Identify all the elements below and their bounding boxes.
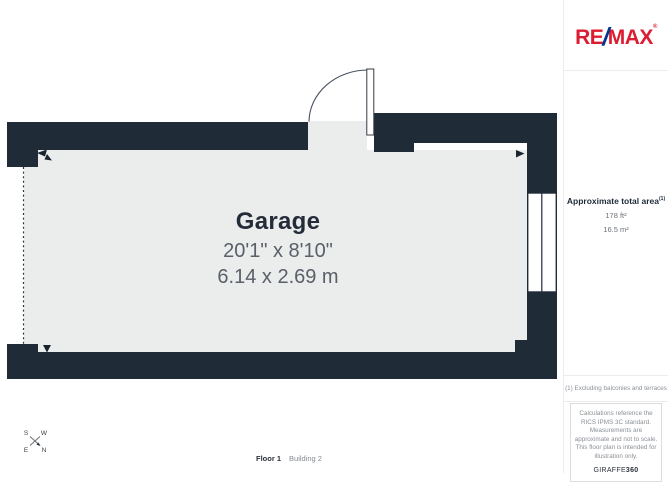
plan-footer: Floor 1Building 2 xyxy=(0,454,578,463)
door-leaf xyxy=(367,69,374,135)
doorway-floor xyxy=(308,121,367,152)
area-footnote: (1) Excluding balconies and terraces xyxy=(564,375,668,402)
info-sidebar: RE/MAX® Approximate total area(1) 178 ft… xyxy=(563,0,668,473)
wall-bottom xyxy=(7,352,557,379)
disclaimer-box: Calculations reference the RICS IPMS 3C … xyxy=(570,403,662,482)
logo-slash-icon: / xyxy=(602,23,608,51)
disclaimer-text: Calculations reference the RICS IPMS 3C … xyxy=(574,410,658,461)
compass-icon: S W E N xyxy=(19,426,51,456)
garage-floor xyxy=(24,150,527,352)
wall-notch-bottom-right xyxy=(515,340,527,352)
compass-e: E xyxy=(24,447,29,454)
floor-label: Floor 1 xyxy=(256,454,281,463)
registered-mark: ® xyxy=(653,24,657,30)
area-footnote-ref: (1) xyxy=(659,196,665,202)
wall-top-left xyxy=(7,122,308,150)
compass-w: W xyxy=(41,430,48,437)
logo-max: MAX xyxy=(608,26,653,49)
floor-plan xyxy=(0,0,563,473)
door-swing-arc xyxy=(309,70,368,122)
area-metric: 16.5 m² xyxy=(564,225,668,234)
wall-right-lower xyxy=(527,292,557,352)
area-imperial: 178 ft² xyxy=(564,211,668,220)
compass-n: N xyxy=(42,447,47,454)
area-title: Approximate total area(1) xyxy=(564,196,668,206)
wall-corner-bottom-left xyxy=(7,344,38,352)
wall-corner-top-left xyxy=(7,150,38,167)
remax-logo: RE/MAX® xyxy=(564,22,668,51)
compass-s: S xyxy=(24,430,29,437)
window xyxy=(528,193,557,292)
wall-right-upper xyxy=(527,143,557,193)
wall-door-jamb xyxy=(374,143,414,152)
wall-top-right xyxy=(374,113,557,143)
logo-re: RE xyxy=(575,26,603,49)
sidebar-divider xyxy=(564,70,668,71)
building-label: Building 2 xyxy=(289,454,322,463)
area-summary: Approximate total area(1) 178 ft² 16.5 m… xyxy=(564,196,668,234)
